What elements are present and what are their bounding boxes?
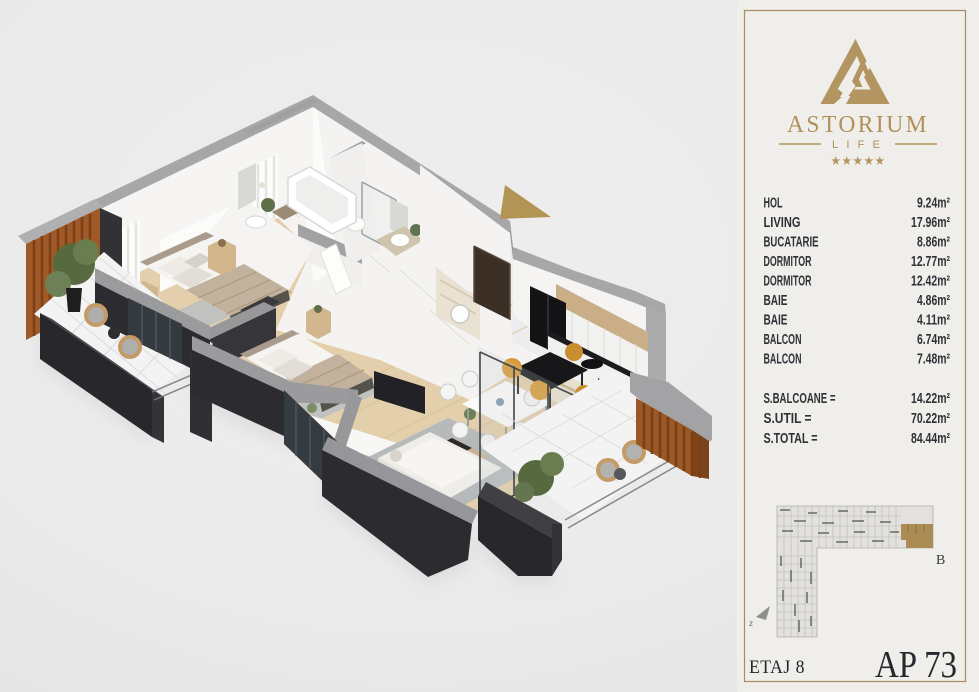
svg-text:9.24m²: 9.24m²: [917, 196, 950, 212]
svg-text:84.44m²: 84.44m²: [911, 431, 950, 447]
svg-text:6.74m²: 6.74m²: [917, 332, 950, 348]
svg-text:BAIE: BAIE: [764, 293, 788, 309]
svg-text:★★★★★: ★★★★★: [831, 154, 886, 168]
svg-text:12.77m²: 12.77m²: [911, 254, 950, 270]
svg-text:HOL: HOL: [764, 196, 783, 212]
svg-text:LIVING: LIVING: [764, 215, 801, 231]
svg-text:S.UTIL =: S.UTIL =: [764, 411, 812, 427]
svg-text:z: z: [749, 619, 753, 628]
svg-text:BAIE: BAIE: [764, 313, 788, 329]
svg-text:12.42m²: 12.42m²: [911, 274, 950, 290]
svg-text:DORMITOR: DORMITOR: [764, 274, 812, 290]
svg-text:17.96m²: 17.96m²: [911, 215, 950, 231]
svg-text:4.11m²: 4.11m²: [917, 313, 950, 329]
svg-text:DORMITOR: DORMITOR: [764, 254, 812, 270]
svg-text:7.48m²: 7.48m²: [917, 352, 950, 368]
svg-text:70.22m²: 70.22m²: [911, 411, 950, 427]
svg-text:AP 73: AP 73: [875, 644, 957, 686]
svg-text:LIFE: LIFE: [832, 139, 888, 151]
svg-text:ASTORIUM: ASTORIUM: [787, 112, 929, 138]
svg-text:BALCON: BALCON: [764, 352, 802, 368]
svg-text:8.86m²: 8.86m²: [917, 235, 950, 251]
svg-text:BALCON: BALCON: [764, 332, 802, 348]
svg-text:S.TOTAL =: S.TOTAL =: [764, 431, 818, 447]
svg-text:B: B: [936, 553, 945, 568]
svg-text:4.86m²: 4.86m²: [917, 293, 950, 309]
svg-text:14.22m²: 14.22m²: [911, 391, 950, 407]
svg-text:BUCATARIE: BUCATARIE: [764, 235, 819, 251]
svg-text:S.BALCOANE =: S.BALCOANE =: [764, 391, 836, 407]
svg-text:ETAJ 8: ETAJ 8: [749, 657, 805, 678]
